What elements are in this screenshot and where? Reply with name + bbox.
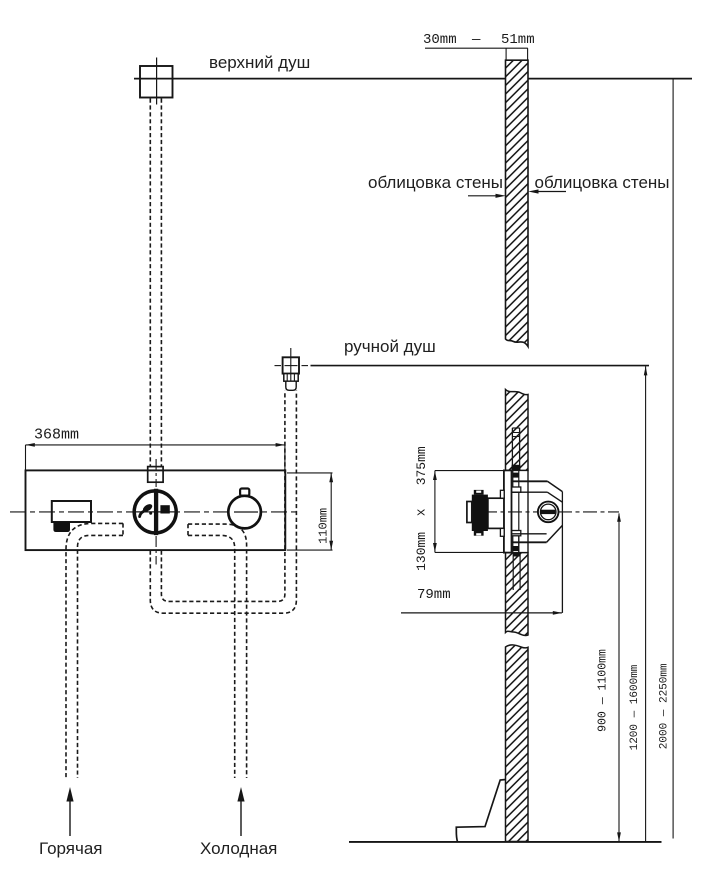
svg-text:Холодная: Холодная xyxy=(200,839,277,858)
svg-text:Горячая: Горячая xyxy=(39,839,103,858)
svg-text:облицовка стены: облицовка стены xyxy=(535,173,670,192)
svg-text:30mm: 30mm xyxy=(423,32,457,48)
svg-text:79mm: 79mm xyxy=(417,587,451,603)
svg-text:верхний душ: верхний душ xyxy=(209,53,310,72)
svg-text:—: — xyxy=(471,32,481,48)
svg-text:x: x xyxy=(413,508,428,516)
svg-text:110mm: 110mm xyxy=(316,508,330,544)
svg-text:облицовка стены: облицовка стены xyxy=(368,173,503,192)
svg-text:375mm: 375mm xyxy=(414,446,429,485)
svg-text:51mm: 51mm xyxy=(501,32,535,48)
svg-text:900 — 1100mm: 900 — 1100mm xyxy=(597,649,610,732)
svg-text:368mm: 368mm xyxy=(34,427,79,444)
svg-text:2000 — 2250mm: 2000 — 2250mm xyxy=(659,663,671,749)
svg-text:1200 — 1600mm: 1200 — 1600mm xyxy=(629,664,641,750)
svg-text:130mm: 130mm xyxy=(414,532,429,571)
svg-text:ручной душ: ручной душ xyxy=(344,337,436,356)
